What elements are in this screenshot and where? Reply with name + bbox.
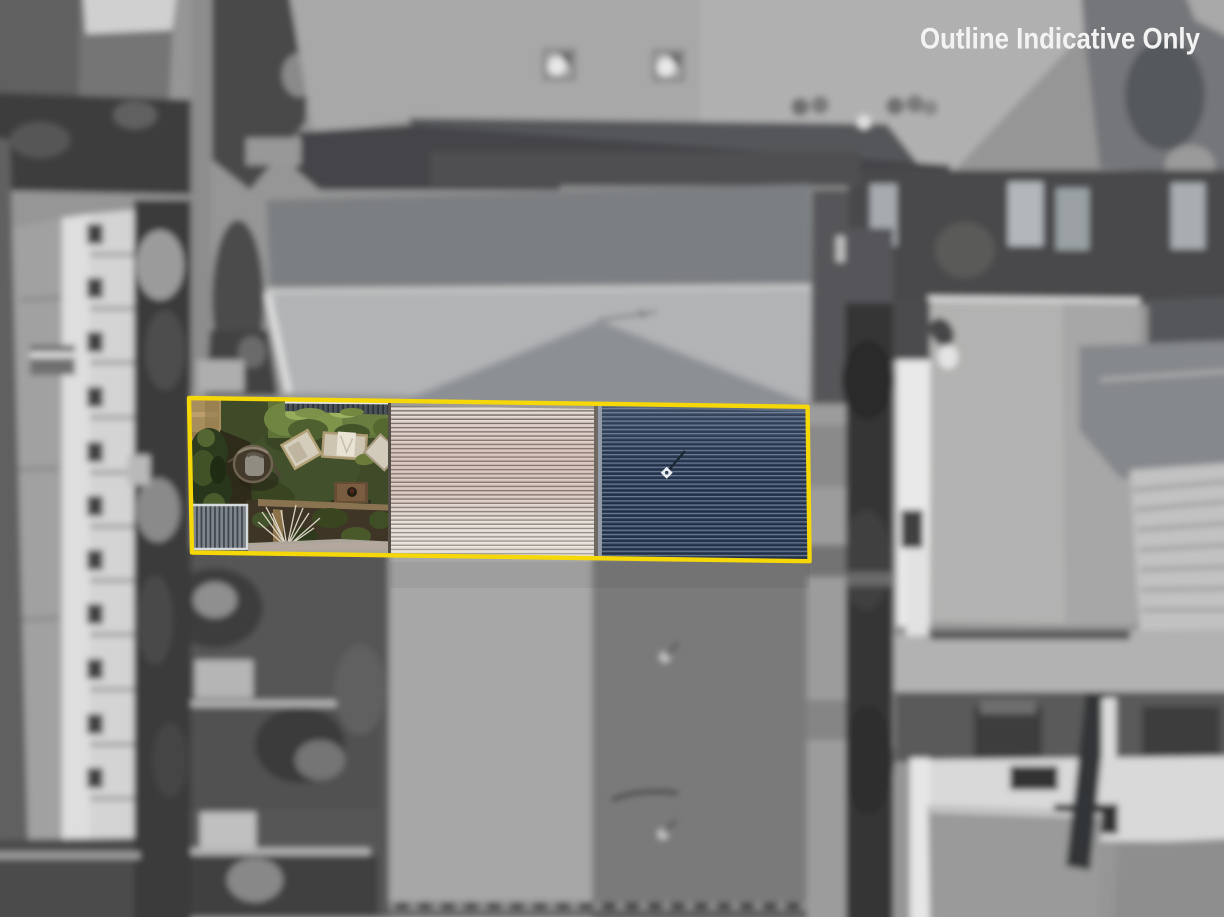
svg-text:Outline Indicative Only: Outline Indicative Only (920, 23, 1200, 56)
